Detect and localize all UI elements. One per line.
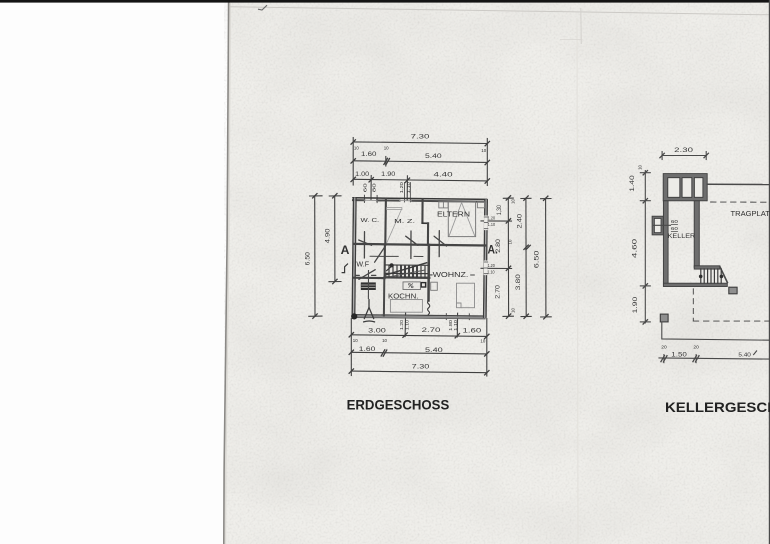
- svg-text:1.20: 1.20: [488, 263, 496, 268]
- svg-text:M. Z.: M. Z.: [394, 219, 416, 225]
- svg-text:3.00: 3.00: [368, 328, 386, 335]
- svg-text:2.40: 2.40: [517, 213, 524, 228]
- svg-text:60: 60: [671, 219, 679, 224]
- svg-text:1,30: 1,30: [496, 205, 503, 215]
- svg-text:10: 10: [510, 199, 515, 204]
- svg-text:7.30: 7.30: [412, 363, 430, 370]
- svg-text:ELTERN: ELTERN: [437, 212, 470, 219]
- svg-text:1.90: 1.90: [381, 171, 396, 178]
- svg-text:1.10: 1.10: [453, 319, 458, 330]
- svg-text:7.30: 7.30: [411, 133, 430, 140]
- svg-text:W.F: W.F: [356, 260, 369, 269]
- svg-text:1.20: 1.20: [399, 181, 404, 193]
- svg-text:10: 10: [353, 338, 358, 343]
- svg-text:A: A: [341, 243, 350, 257]
- svg-text:1.60: 1.60: [463, 327, 482, 334]
- svg-text:1.90: 1.90: [632, 296, 639, 313]
- svg-text:2.70: 2.70: [494, 285, 501, 299]
- svg-text:10: 10: [382, 338, 387, 343]
- svg-text:10: 10: [384, 146, 389, 151]
- svg-text:W. C.: W. C.: [361, 218, 380, 224]
- svg-text:10: 10: [508, 239, 513, 244]
- svg-text:1.10: 1.10: [406, 181, 411, 193]
- svg-text:1.60: 1.60: [359, 346, 376, 353]
- svg-text:10: 10: [511, 308, 516, 313]
- svg-text:4.90: 4.90: [324, 228, 331, 243]
- svg-text:1.50: 1.50: [671, 351, 687, 358]
- svg-text:KELLERGESCH: KELLERGESCH: [665, 399, 770, 415]
- svg-text:5.40: 5.40: [425, 153, 442, 160]
- svg-text:1.60: 1.60: [361, 151, 377, 158]
- svg-text:1.10: 1.10: [488, 222, 496, 227]
- svg-text:WOHNZ.: WOHNZ.: [433, 270, 469, 279]
- svg-text:KELLER: KELLER: [668, 233, 696, 240]
- svg-text:ERDGESCHOSS: ERDGESCHOSS: [347, 397, 450, 413]
- svg-text:20: 20: [661, 344, 667, 349]
- svg-text:10: 10: [480, 338, 485, 343]
- svg-text:60: 60: [671, 226, 679, 231]
- svg-text:1.00: 1.00: [355, 171, 369, 178]
- svg-text:6.50: 6.50: [305, 252, 312, 266]
- svg-text:10: 10: [638, 164, 643, 169]
- svg-text:5.40: 5.40: [738, 352, 751, 358]
- svg-text:1.10: 1.10: [487, 269, 495, 274]
- svg-text:20: 20: [693, 344, 699, 349]
- svg-text:1.40: 1.40: [629, 175, 636, 192]
- svg-text:1.20: 1.20: [488, 216, 496, 221]
- svg-text:4.60: 4.60: [631, 238, 638, 258]
- svg-text:80: 80: [372, 182, 377, 192]
- svg-text:10: 10: [354, 145, 359, 150]
- svg-text:1.10: 1.10: [404, 319, 409, 330]
- svg-text:5.40: 5.40: [425, 347, 443, 354]
- svg-text:4.40: 4.40: [434, 172, 454, 179]
- svg-text:6.50: 6.50: [534, 250, 541, 268]
- svg-text:1.20: 1.20: [399, 319, 404, 330]
- svg-text:A.: A.: [488, 245, 498, 257]
- svg-text:2.70: 2.70: [422, 327, 441, 334]
- svg-text:3.80: 3.80: [515, 274, 522, 291]
- svg-text:KOCHN.: KOCHN.: [388, 292, 418, 301]
- svg-text:TRAGPLATTE: TRAGPLATTE: [731, 209, 770, 218]
- svg-text:10: 10: [481, 148, 486, 153]
- svg-text:60: 60: [363, 182, 368, 192]
- svg-text:2.30: 2.30: [674, 147, 693, 154]
